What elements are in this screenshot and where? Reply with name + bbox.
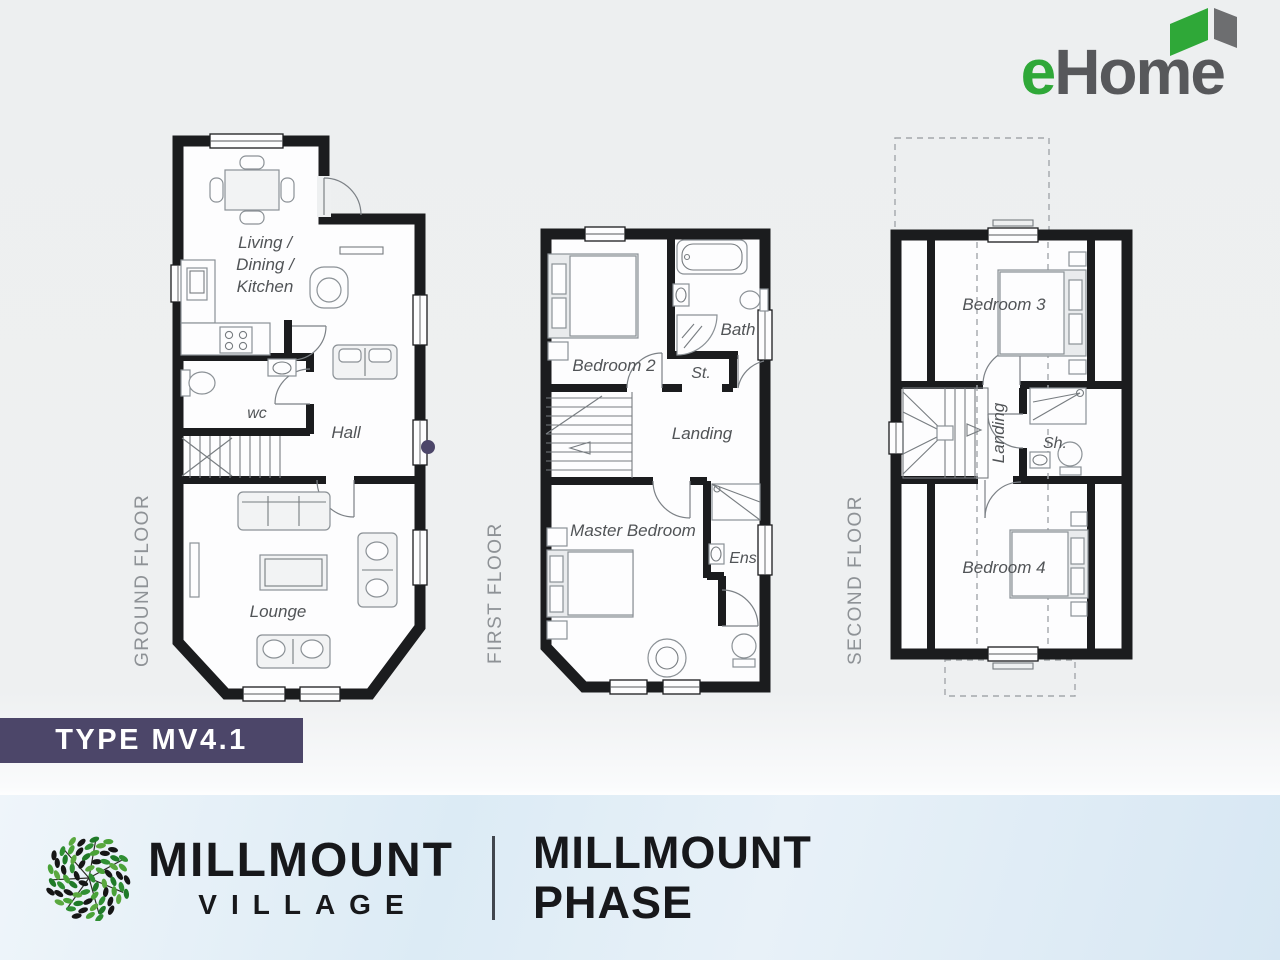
- svg-text:Living /: Living /: [238, 233, 294, 252]
- phase-line1: MILLMOUNT: [533, 828, 812, 878]
- hob: [220, 327, 252, 353]
- footer-divider: [492, 836, 495, 920]
- village-line1: MILLMOUNT: [148, 837, 454, 885]
- millmount-tree-logo: [46, 835, 132, 921]
- svg-text:Hall: Hall: [331, 423, 362, 442]
- svg-text:Bedroom 3: Bedroom 3: [962, 295, 1046, 314]
- svg-text:Master Bedroom: Master Bedroom: [570, 521, 696, 540]
- first-floor-plan: Bedroom 2 Bath St. Landing Master Bedroo…: [532, 226, 780, 700]
- ehome-e: e: [1021, 36, 1055, 108]
- ens-toilet: [732, 634, 756, 658]
- village-line2: VILLAGE: [162, 891, 454, 919]
- millmount-village-wordmark: MILLMOUNT VILLAGE: [148, 837, 454, 919]
- svg-text:Lounge: Lounge: [250, 602, 307, 621]
- lower-outline-dashed: [945, 660, 1075, 696]
- phase-line2: PHASE: [533, 878, 812, 928]
- svg-text:Dining /: Dining /: [236, 255, 296, 274]
- open-book-icon: [1168, 6, 1240, 62]
- toilet: [189, 372, 215, 394]
- master-chair: [648, 639, 686, 677]
- first-floor-label: FIRST FLOOR: [482, 524, 510, 662]
- svg-text:Ens: Ens: [729, 550, 757, 567]
- ehome-logo: eHome: [1021, 40, 1224, 104]
- type-badge: TYPE MV4.1: [0, 718, 303, 763]
- svg-text:wc: wc: [247, 405, 267, 422]
- svg-text:Kitchen: Kitchen: [237, 277, 294, 296]
- svg-text:Landing: Landing: [989, 402, 1008, 463]
- armchair: [317, 278, 341, 302]
- bath-toilet: [740, 291, 760, 309]
- footer-banner: MILLMOUNT VILLAGE MILLMOUNT PHASE: [0, 795, 1280, 960]
- ground-floor-label: GROUND FLOOR: [129, 498, 157, 662]
- svg-text:Bedroom 4: Bedroom 4: [962, 558, 1045, 577]
- svg-text:Bedroom 2: Bedroom 2: [572, 356, 656, 375]
- svg-text:Bath: Bath: [721, 320, 756, 339]
- roof-outline-dashed: [895, 138, 1049, 232]
- coffee-table: [260, 555, 327, 590]
- plot-marker-dot: [421, 440, 435, 454]
- millmount-phase-wordmark: MILLMOUNT PHASE: [533, 828, 812, 927]
- svg-text:St.: St.: [691, 365, 711, 382]
- tv-unit: [190, 543, 199, 597]
- svg-text:Landing: Landing: [672, 424, 733, 443]
- second-floor-plan: Bedroom 3 Landing Sh. Bedroom 4: [883, 130, 1138, 705]
- front-door: [317, 176, 361, 217]
- ground-floor-plan: Living / Dining / Kitchen wc Hall Lounge: [168, 130, 430, 705]
- svg-text:Sh.: Sh.: [1043, 435, 1067, 452]
- bath-basin: [673, 284, 689, 306]
- type-badge-label: TYPE MV4.1: [55, 724, 248, 757]
- sofa-3seat: [238, 492, 330, 530]
- second-floor-label: SECOND FLOOR: [842, 498, 870, 662]
